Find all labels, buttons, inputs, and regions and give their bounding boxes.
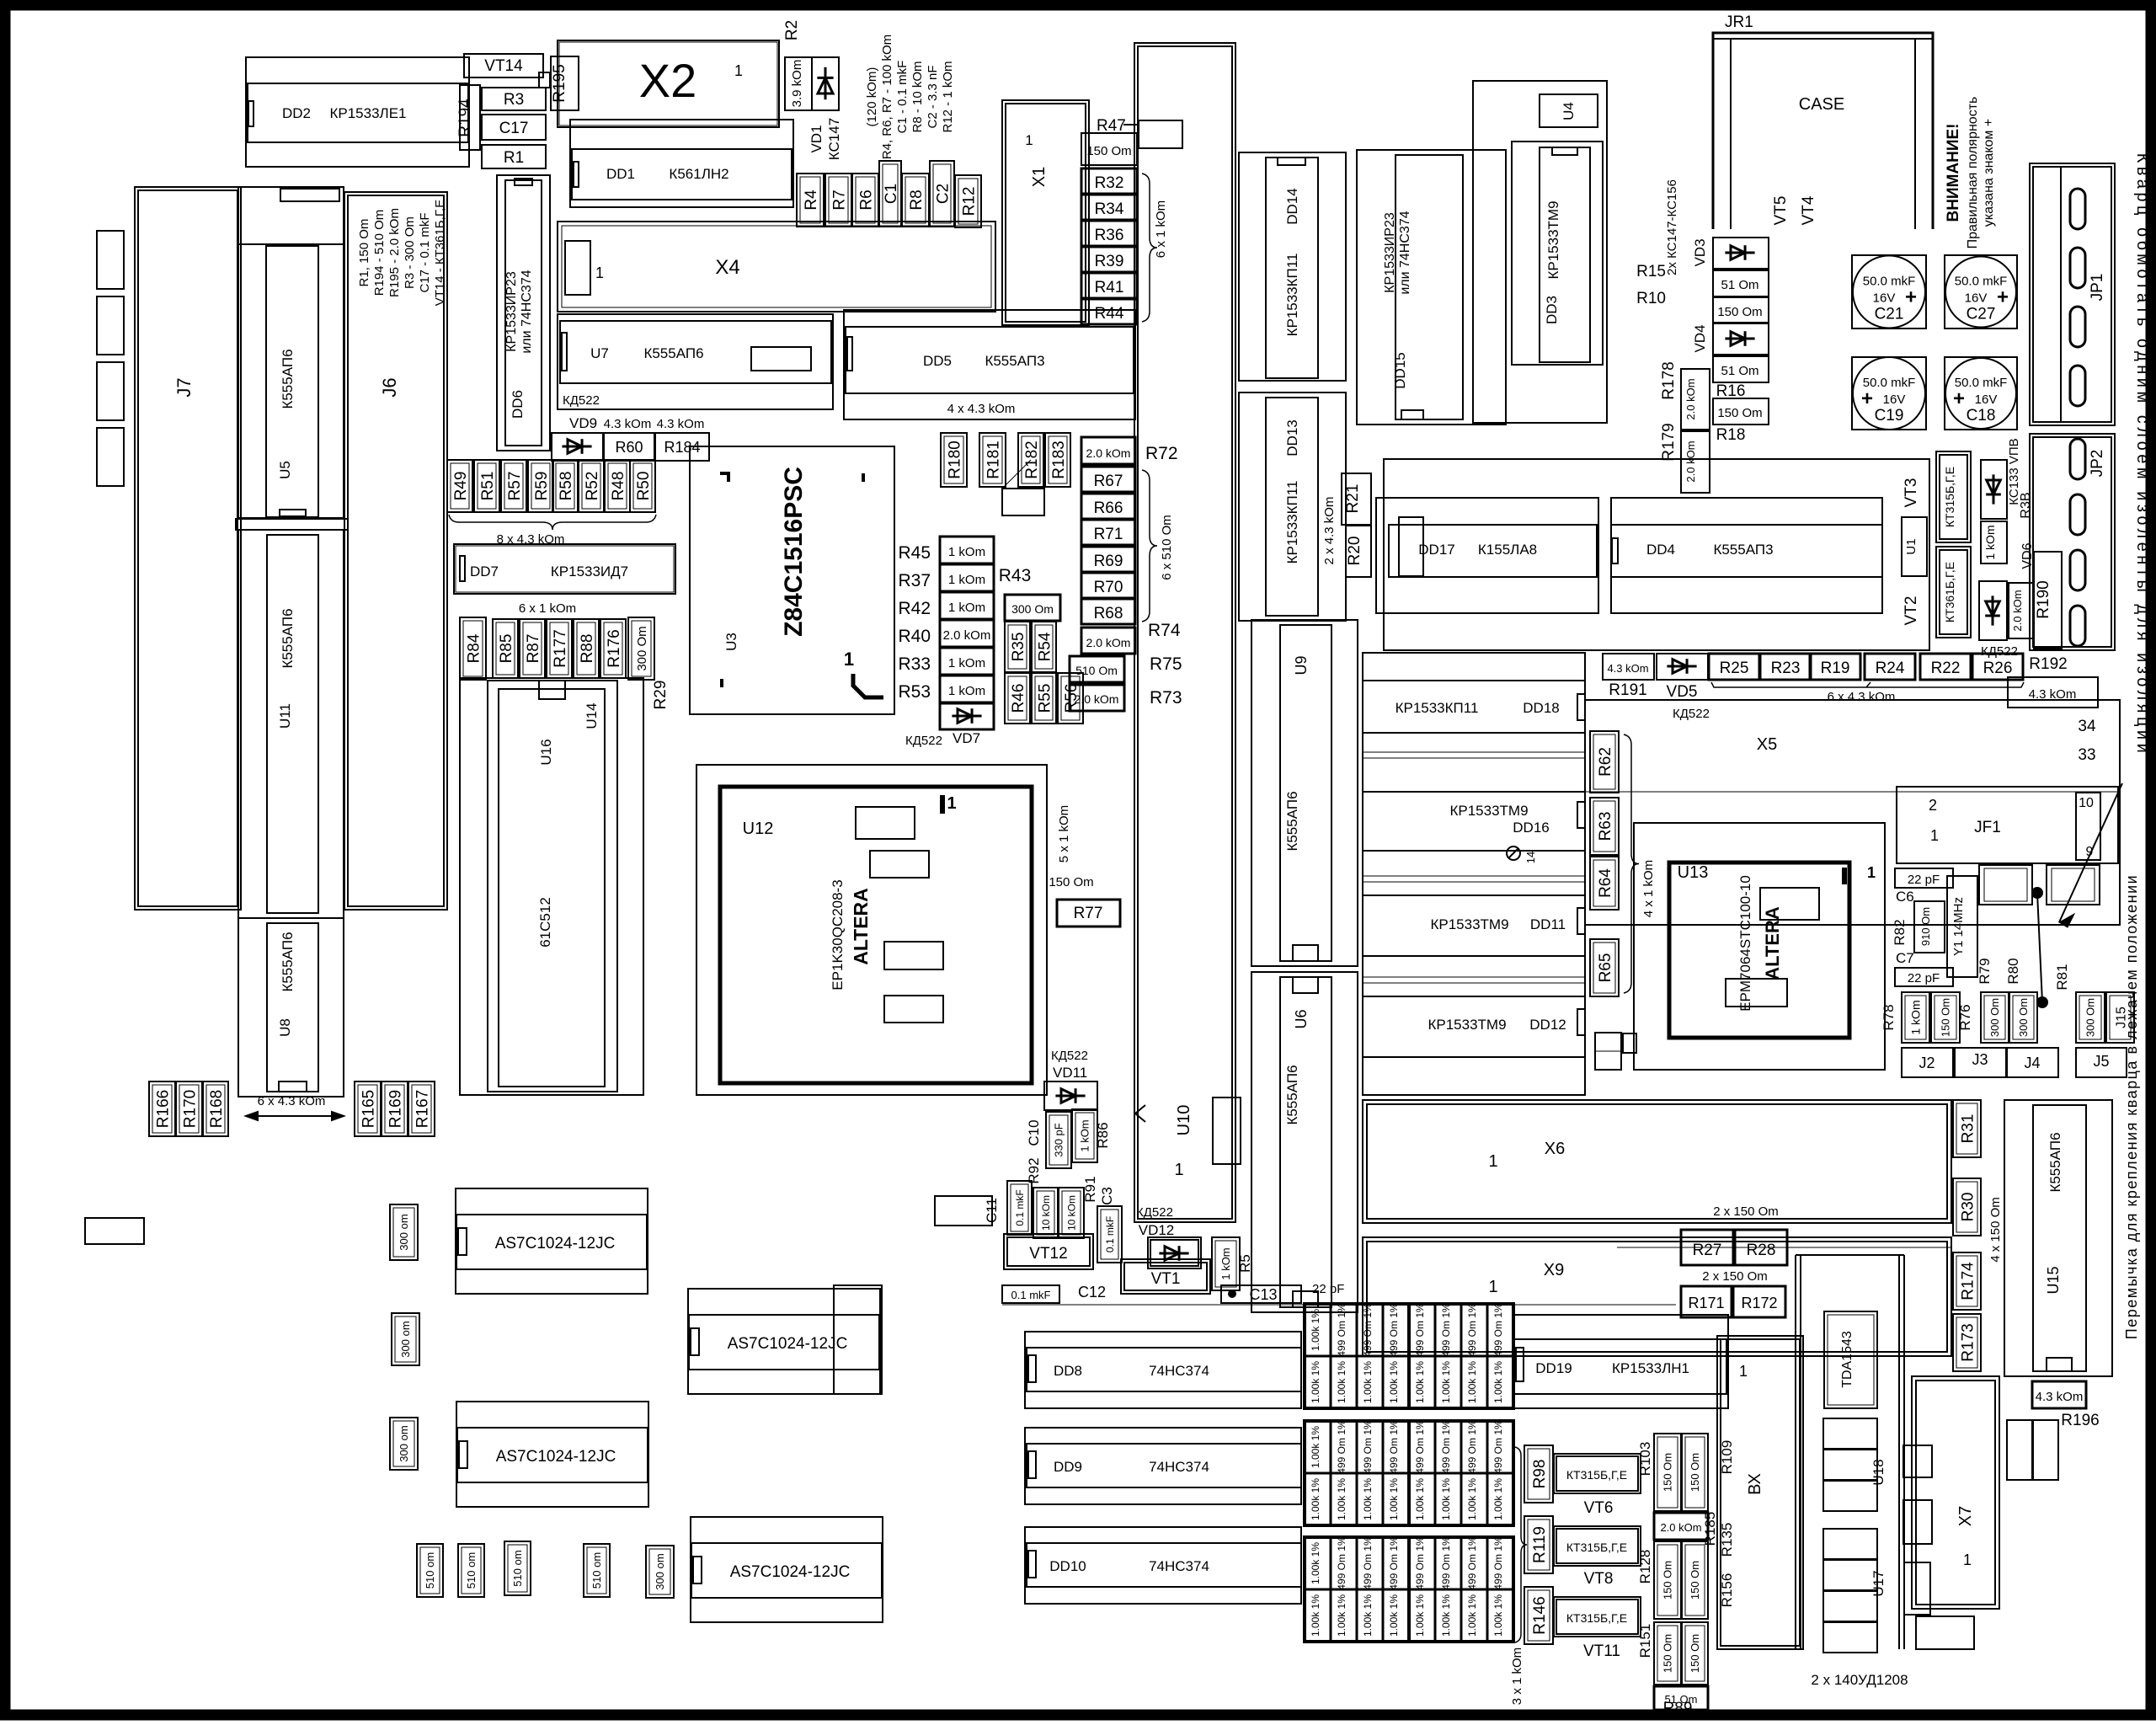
svg-text:X5: X5 bbox=[1757, 735, 1777, 754]
svg-text:U16: U16 bbox=[538, 739, 554, 765]
svg-text:R53: R53 bbox=[898, 682, 931, 702]
svg-text:DD14: DD14 bbox=[1284, 188, 1300, 224]
svg-text:C3: C3 bbox=[1099, 1187, 1115, 1205]
svg-text:R15: R15 bbox=[1636, 263, 1666, 280]
svg-text:1.00k 1%: 1.00k 1% bbox=[1466, 1478, 1478, 1520]
svg-text:R182: R182 bbox=[1023, 441, 1041, 478]
svg-text:U8: U8 bbox=[277, 1018, 293, 1037]
svg-text:499 Om 1%: 499 Om 1% bbox=[1388, 1536, 1400, 1590]
svg-text:VT5: VT5 bbox=[1772, 196, 1790, 226]
svg-text:0.1 mkF: 0.1 mkF bbox=[1011, 1289, 1051, 1301]
svg-text:КР1533ИР23: КР1533ИР23 bbox=[1383, 212, 1397, 293]
svg-text:R45: R45 bbox=[898, 543, 931, 563]
svg-text:R3 - 300 Om: R3 - 300 Om bbox=[403, 216, 417, 289]
svg-text:499 Om 1%: 499 Om 1% bbox=[1440, 1536, 1452, 1590]
svg-text:JP1: JP1 bbox=[2089, 274, 2106, 302]
svg-text:TDA1543: TDA1543 bbox=[1840, 1331, 1854, 1388]
svg-text:R69: R69 bbox=[1094, 553, 1123, 570]
svg-text:R3B: R3B bbox=[2019, 492, 2033, 518]
svg-text:2.0 kOm: 2.0 kOm bbox=[2011, 590, 2024, 631]
svg-text:К555АП3: К555АП3 bbox=[1713, 542, 1773, 558]
svg-text:U9: U9 bbox=[1293, 655, 1310, 675]
svg-text:R60: R60 bbox=[615, 439, 643, 456]
svg-text:150 Om: 150 Om bbox=[1717, 305, 1762, 319]
svg-text:R24: R24 bbox=[1876, 660, 1905, 677]
svg-text:C13: C13 bbox=[1249, 1286, 1277, 1303]
svg-text:DD4: DD4 bbox=[1646, 542, 1675, 558]
svg-text:J3: J3 bbox=[1972, 1051, 1988, 1068]
svg-text:Правильная полярность: Правильная полярность bbox=[1966, 97, 1980, 249]
svg-text:R194 - 510 Om: R194 - 510 Om bbox=[372, 210, 387, 296]
svg-text:499 Om 1%: 499 Om 1% bbox=[1336, 1420, 1347, 1474]
svg-text:КТ315Б,Г,Е: КТ315Б,Г,Е bbox=[1566, 1541, 1627, 1554]
svg-text:R173: R173 bbox=[1959, 1323, 1977, 1361]
svg-text:0.1 mkF: 0.1 mkF bbox=[1104, 1216, 1116, 1252]
svg-text:1.00k 1%: 1.00k 1% bbox=[1388, 1594, 1400, 1637]
svg-text:2.0 kOm: 2.0 kOm bbox=[1086, 636, 1131, 649]
svg-text:1 kOm: 1 kOm bbox=[1079, 1119, 1091, 1151]
svg-text:VT12: VT12 bbox=[1029, 1245, 1067, 1263]
svg-text:ALTERA: ALTERA bbox=[850, 888, 872, 965]
svg-text:К155ЛА8: К155ЛА8 bbox=[1478, 542, 1537, 558]
svg-text:150 Om: 150 Om bbox=[1689, 1453, 1701, 1492]
svg-text:C19: C19 bbox=[1875, 407, 1904, 425]
svg-text:1.00k 1%: 1.00k 1% bbox=[1492, 1361, 1504, 1403]
svg-text:X6: X6 bbox=[1545, 1140, 1565, 1158]
svg-text:R82: R82 bbox=[1892, 919, 1908, 945]
svg-text:R1, 150 Om: R1, 150 Om bbox=[357, 219, 371, 287]
svg-text:Y1 14MHz: Y1 14MHz bbox=[1951, 897, 1966, 956]
svg-text:1: 1 bbox=[1174, 1161, 1183, 1179]
svg-text:X7: X7 bbox=[1956, 1506, 1975, 1526]
svg-text:VT14 - КТ361Б,Г,Е: VT14 - КТ361Б,Г,Е bbox=[433, 200, 447, 307]
svg-text:1 kOm: 1 kOm bbox=[948, 684, 985, 698]
svg-text:R44: R44 bbox=[1095, 305, 1124, 323]
svg-text:Кварц обмотать одним слоем изо: Кварц обмотать одним слоем изоленты для … bbox=[2133, 153, 2152, 757]
svg-text:R36: R36 bbox=[1095, 227, 1124, 244]
svg-text:300 om: 300 om bbox=[398, 1214, 410, 1250]
svg-text:КТ315Б,Г,Е: КТ315Б,Г,Е bbox=[1566, 1468, 1627, 1482]
svg-text:R58: R58 bbox=[558, 472, 575, 501]
svg-text:3 x 1 kOm: 3 x 1 kOm bbox=[1510, 1648, 1524, 1705]
svg-text:R57: R57 bbox=[506, 472, 524, 501]
svg-text:499 Om 1%: 499 Om 1% bbox=[1466, 1303, 1478, 1357]
svg-text:AS7C1024-12JC: AS7C1024-12JC bbox=[730, 1563, 851, 1581]
svg-text:ALTERA: ALTERA bbox=[1762, 906, 1783, 980]
svg-text:4.3 kOm: 4.3 kOm bbox=[657, 417, 705, 431]
svg-text:+: + bbox=[1997, 286, 2009, 309]
svg-text:R64: R64 bbox=[1597, 868, 1614, 898]
svg-text:1 kOm: 1 kOm bbox=[948, 573, 985, 587]
svg-text:R171: R171 bbox=[1688, 1295, 1724, 1311]
svg-text:R34: R34 bbox=[1095, 200, 1124, 218]
svg-text:U11: U11 bbox=[277, 703, 293, 729]
svg-text:C18: C18 bbox=[1967, 407, 1996, 425]
svg-text:R23: R23 bbox=[1771, 660, 1801, 677]
svg-text:2.0 kOm: 2.0 kOm bbox=[1660, 1521, 1701, 1534]
svg-text:2x КС147-КС156: 2x КС147-КС156 bbox=[1665, 179, 1679, 275]
svg-text:R92: R92 bbox=[1026, 1157, 1042, 1183]
svg-text:6 x 510 Om: 6 x 510 Om bbox=[1160, 515, 1174, 580]
svg-text:910 Om: 910 Om bbox=[1919, 907, 1932, 946]
svg-text:R10: R10 bbox=[1636, 290, 1666, 307]
svg-text:1: 1 bbox=[1963, 1551, 1972, 1568]
svg-text:R128: R128 bbox=[1637, 1550, 1653, 1584]
svg-text:VD4: VD4 bbox=[1692, 324, 1708, 352]
svg-text:4 x 1 kOm: 4 x 1 kOm bbox=[1641, 860, 1656, 917]
svg-text:1.00k 1%: 1.00k 1% bbox=[1310, 1542, 1321, 1584]
svg-text:510 om: 510 om bbox=[465, 1552, 478, 1589]
svg-text:ВХ: ВХ bbox=[1746, 1473, 1764, 1495]
svg-text:499 Om 1%: 499 Om 1% bbox=[1492, 1420, 1504, 1474]
svg-text:U6: U6 bbox=[1293, 1009, 1310, 1028]
svg-text:AS7C1024-12JC: AS7C1024-12JC bbox=[495, 1235, 616, 1252]
svg-text:2.0 kOm: 2.0 kOm bbox=[943, 628, 991, 643]
svg-text:499 Om 1%: 499 Om 1% bbox=[1336, 1303, 1347, 1357]
svg-text:КТ315Б,Г,Е: КТ315Б,Г,Е bbox=[1566, 1611, 1627, 1625]
svg-text:R168: R168 bbox=[208, 1090, 226, 1128]
svg-text:1: 1 bbox=[844, 649, 854, 670]
svg-text:R88: R88 bbox=[579, 634, 596, 664]
svg-text:2 x 140УД1208: 2 x 140УД1208 bbox=[1811, 1672, 1908, 1688]
svg-text:R196: R196 bbox=[2061, 1412, 2099, 1429]
svg-text:R87: R87 bbox=[525, 634, 542, 664]
svg-text:U5: U5 bbox=[277, 461, 293, 479]
svg-text:14: 14 bbox=[1524, 852, 1537, 863]
svg-text:74HC374: 74HC374 bbox=[1149, 1558, 1209, 1574]
svg-text:R25: R25 bbox=[1720, 660, 1749, 677]
svg-text:R5: R5 bbox=[1237, 1254, 1253, 1273]
svg-text:J15: J15 bbox=[2114, 1007, 2128, 1028]
svg-text:1: 1 bbox=[1488, 1278, 1497, 1296]
svg-text:К555АП6: К555АП6 bbox=[280, 932, 296, 991]
svg-text:КД522: КД522 bbox=[1136, 1205, 1173, 1220]
svg-text:J5: J5 bbox=[2093, 1053, 2109, 1070]
svg-text:1 kOm: 1 kOm bbox=[948, 601, 985, 615]
svg-text:R70: R70 bbox=[1094, 579, 1123, 596]
svg-text:C2: C2 bbox=[934, 184, 952, 204]
svg-text:16V: 16V bbox=[1883, 393, 1906, 407]
svg-text:VT14: VT14 bbox=[484, 57, 523, 75]
svg-text:499 Om 1%: 499 Om 1% bbox=[1388, 1420, 1400, 1474]
svg-text:(120 kOm): (120 kOm) bbox=[865, 67, 879, 127]
svg-text:К561ЛН2: К561ЛН2 bbox=[669, 166, 728, 182]
svg-text:DD12: DD12 bbox=[1529, 1017, 1566, 1033]
svg-text:510 om: 510 om bbox=[590, 1552, 603, 1589]
svg-text:3.9 kOm: 3.9 kOm bbox=[790, 60, 804, 108]
svg-text:300 om: 300 om bbox=[654, 1553, 666, 1589]
svg-text:+: + bbox=[1905, 286, 1917, 309]
svg-text:R1: R1 bbox=[504, 149, 524, 167]
svg-text:R73: R73 bbox=[1150, 688, 1182, 708]
svg-text:X1: X1 bbox=[1030, 167, 1049, 187]
svg-text:R66: R66 bbox=[1094, 499, 1123, 517]
svg-text:R54: R54 bbox=[1036, 632, 1054, 661]
svg-text:R12 - 1 kOm: R12 - 1 kOm bbox=[941, 61, 955, 132]
svg-text:R192: R192 bbox=[2029, 655, 2067, 673]
svg-text:6 x 4.3 kOm: 6 x 4.3 kOm bbox=[1828, 690, 1896, 704]
svg-text:16V: 16V bbox=[1965, 291, 1988, 306]
svg-text:R47: R47 bbox=[1097, 117, 1126, 135]
svg-text:DD3: DD3 bbox=[1544, 296, 1560, 324]
svg-text:150 Om: 150 Om bbox=[1086, 144, 1131, 158]
svg-text:330 pF: 330 pF bbox=[1053, 1123, 1065, 1157]
svg-text:DD11: DD11 bbox=[1530, 916, 1566, 932]
svg-text:R68: R68 bbox=[1094, 605, 1123, 622]
svg-text:КР1533ТМ9: КР1533ТМ9 bbox=[1449, 803, 1528, 819]
svg-text:указана знаком +: указана знаком + bbox=[1982, 119, 1996, 227]
svg-text:DD7: DD7 bbox=[470, 563, 499, 579]
svg-text:R46: R46 bbox=[1010, 684, 1027, 713]
svg-text:5 x 1 kOm: 5 x 1 kOm bbox=[1057, 805, 1071, 862]
svg-text:VD7: VD7 bbox=[953, 730, 980, 746]
svg-text:2: 2 bbox=[1929, 797, 1937, 814]
svg-text:499 Om 1%: 499 Om 1% bbox=[1362, 1303, 1374, 1357]
svg-text:R62: R62 bbox=[1597, 747, 1614, 777]
svg-text:R183: R183 bbox=[1050, 441, 1068, 478]
svg-text:R180: R180 bbox=[946, 441, 963, 478]
svg-text:R59: R59 bbox=[533, 472, 551, 501]
svg-text:1.00k 1%: 1.00k 1% bbox=[1388, 1361, 1400, 1403]
svg-text:R40: R40 bbox=[898, 627, 931, 646]
svg-text:16V: 16V bbox=[1975, 393, 1998, 407]
svg-text:ВНИМАНИЕ!: ВНИМАНИЕ! bbox=[1945, 123, 1962, 222]
svg-text:К555АП3: К555АП3 bbox=[985, 353, 1044, 369]
svg-text:DD15: DD15 bbox=[1392, 352, 1408, 388]
svg-text:2 x 150 Om: 2 x 150 Om bbox=[1702, 1269, 1768, 1284]
svg-text:X4: X4 bbox=[715, 256, 739, 279]
svg-text:R20: R20 bbox=[1346, 537, 1364, 566]
svg-text:C1: C1 bbox=[883, 184, 900, 204]
svg-text:К555АП6: К555АП6 bbox=[1284, 791, 1300, 851]
svg-text:R4, R6, R7 - 100 kOm: R4, R6, R7 - 100 kOm bbox=[880, 35, 894, 159]
svg-text:499 Om 1%: 499 Om 1% bbox=[1362, 1420, 1374, 1474]
svg-text:150 Om: 150 Om bbox=[1940, 998, 1952, 1037]
svg-text:VD1: VD1 bbox=[808, 125, 825, 152]
svg-text:R78: R78 bbox=[1881, 1004, 1897, 1030]
svg-text:1.00k 1%: 1.00k 1% bbox=[1336, 1594, 1347, 1637]
svg-text:R37: R37 bbox=[898, 571, 931, 590]
svg-text:JF1: JF1 bbox=[1974, 819, 2001, 836]
svg-text:R21: R21 bbox=[1344, 484, 1362, 514]
svg-text:КР1533КП11: КР1533КП11 bbox=[1396, 700, 1479, 716]
svg-text:R165: R165 bbox=[360, 1090, 377, 1128]
svg-text:1 kOm: 1 kOm bbox=[1909, 1000, 1923, 1034]
svg-text:R42: R42 bbox=[898, 599, 931, 618]
svg-text:R43: R43 bbox=[999, 566, 1032, 585]
svg-text:R8: R8 bbox=[908, 190, 926, 210]
svg-text:DD10: DD10 bbox=[1049, 1558, 1086, 1574]
svg-text:1.00k 1%: 1.00k 1% bbox=[1414, 1594, 1426, 1637]
svg-text:R16: R16 bbox=[1716, 382, 1746, 400]
svg-text:499 Om 1%: 499 Om 1% bbox=[1492, 1303, 1504, 1357]
svg-text:R156: R156 bbox=[1719, 1573, 1735, 1608]
svg-text:499 Om 1%: 499 Om 1% bbox=[1362, 1536, 1374, 1590]
svg-text:1.00k 1%: 1.00k 1% bbox=[1440, 1594, 1452, 1637]
svg-text:1: 1 bbox=[1867, 864, 1876, 881]
svg-text:R28: R28 bbox=[1747, 1242, 1776, 1259]
svg-text:КД522: КД522 bbox=[905, 734, 942, 748]
svg-text:К555АП6: К555АП6 bbox=[643, 345, 703, 361]
svg-text:22 pF: 22 pF bbox=[1908, 971, 1940, 985]
svg-text:34: 34 bbox=[2078, 718, 2096, 735]
svg-text:10: 10 bbox=[2079, 796, 2094, 810]
svg-text:150 Om: 150 Om bbox=[1662, 1634, 1674, 1673]
svg-text:К555АП6: К555АП6 bbox=[1284, 1065, 1300, 1124]
svg-text:КР1533ЛН1: КР1533ЛН1 bbox=[1612, 1360, 1689, 1376]
svg-text:EPM7064STC100-10: EPM7064STC100-10 bbox=[1737, 875, 1753, 1012]
svg-text:510 om: 510 om bbox=[511, 1550, 524, 1586]
svg-text:R170: R170 bbox=[181, 1090, 199, 1128]
svg-text:C12: C12 bbox=[1078, 1284, 1106, 1300]
svg-text:U15: U15 bbox=[2045, 1266, 2062, 1294]
svg-text:U10: U10 bbox=[1175, 1105, 1193, 1136]
svg-text:DD5: DD5 bbox=[923, 353, 952, 369]
svg-text:1.00k 1%: 1.00k 1% bbox=[1466, 1361, 1478, 1403]
svg-text:C11: C11 bbox=[984, 1198, 1000, 1223]
svg-text:R3: R3 bbox=[504, 91, 524, 109]
svg-text:КР1533ИР23: КР1533ИР23 bbox=[504, 271, 519, 352]
svg-text:1: 1 bbox=[595, 264, 604, 281]
svg-text:2.0 kOm: 2.0 kOm bbox=[1684, 441, 1697, 482]
svg-text:R98: R98 bbox=[1531, 1460, 1549, 1489]
svg-text:R39: R39 bbox=[1095, 253, 1124, 270]
svg-text:Z84C1516PSC: Z84C1516PSC bbox=[780, 467, 808, 637]
svg-text:2 x 4.3 kOm: 2 x 4.3 kOm bbox=[1322, 497, 1337, 565]
svg-text:R169: R169 bbox=[387, 1090, 404, 1128]
svg-text:R41: R41 bbox=[1095, 279, 1124, 296]
svg-text:150 Om: 150 Om bbox=[1662, 1561, 1674, 1599]
svg-text:Перемычка для крепления кварца: Перемычка для крепления кварца в лежачем… bbox=[2123, 874, 2140, 1339]
svg-text:R167: R167 bbox=[414, 1090, 431, 1128]
svg-text:300 Om: 300 Om bbox=[1988, 998, 2001, 1037]
svg-text:1.00k 1%: 1.00k 1% bbox=[1310, 1478, 1321, 1520]
svg-text:К555АП6: К555АП6 bbox=[280, 349, 296, 409]
svg-text:R109: R109 bbox=[1719, 1440, 1735, 1475]
svg-text:150 Om: 150 Om bbox=[1662, 1453, 1674, 1492]
svg-text:6 x 1 kOm: 6 x 1 kOm bbox=[1154, 200, 1168, 258]
svg-text:C17 - 0.1 mkF: C17 - 0.1 mkF bbox=[418, 212, 432, 292]
svg-text:R151: R151 bbox=[1637, 1624, 1653, 1658]
svg-text:10 kOm: 10 kOm bbox=[1065, 1195, 1077, 1231]
svg-text:74HC374: 74HC374 bbox=[1149, 1363, 1209, 1379]
svg-text:VD11: VD11 bbox=[1053, 1065, 1087, 1081]
svg-text:300 Om: 300 Om bbox=[2017, 998, 2030, 1037]
svg-text:VT11: VT11 bbox=[1583, 1642, 1620, 1660]
svg-text:R29: R29 bbox=[652, 681, 670, 710]
svg-text:R103: R103 bbox=[1637, 1442, 1653, 1477]
svg-text:4.3 kOm: 4.3 kOm bbox=[2036, 1390, 2084, 1404]
svg-text:или 74HC374: или 74HC374 bbox=[1398, 211, 1412, 294]
svg-text:К555АП6: К555АП6 bbox=[280, 608, 296, 668]
svg-text:R50: R50 bbox=[635, 472, 653, 501]
svg-text:1 kOm: 1 kOm bbox=[948, 656, 985, 670]
svg-text:510 om: 510 om bbox=[424, 1552, 436, 1589]
svg-text:DD19: DD19 bbox=[1535, 1360, 1572, 1376]
svg-text:R190: R190 bbox=[2035, 580, 2052, 618]
svg-text:C21: C21 bbox=[1875, 306, 1904, 323]
svg-text:1.00k 1%: 1.00k 1% bbox=[1310, 1309, 1321, 1351]
svg-text:R33: R33 bbox=[898, 654, 931, 674]
svg-text:R27: R27 bbox=[1693, 1242, 1722, 1259]
svg-text:R32: R32 bbox=[1095, 174, 1124, 192]
svg-text:R191: R191 bbox=[1609, 681, 1646, 699]
svg-text:1.00k 1%: 1.00k 1% bbox=[1362, 1594, 1374, 1637]
svg-text:VD9: VD9 bbox=[569, 415, 597, 431]
svg-text:150 Om: 150 Om bbox=[1049, 875, 1093, 889]
svg-text:1 kOm: 1 kOm bbox=[1219, 1247, 1232, 1279]
svg-text:R195 - 2.0 kOm: R195 - 2.0 kOm bbox=[387, 208, 402, 297]
svg-text:AS7C1024-12JC: AS7C1024-12JC bbox=[496, 1448, 616, 1466]
svg-text:AS7C1024-12JC: AS7C1024-12JC bbox=[728, 1335, 848, 1353]
svg-text:U17: U17 bbox=[1870, 1570, 1886, 1596]
svg-text:R67: R67 bbox=[1094, 473, 1123, 490]
svg-text:499 Om 1%: 499 Om 1% bbox=[1440, 1303, 1452, 1357]
svg-text:1: 1 bbox=[1739, 1363, 1748, 1380]
svg-text:J7: J7 bbox=[173, 377, 195, 397]
svg-text:EP1K30QC208-3: EP1K30QC208-3 bbox=[830, 879, 846, 990]
svg-text:DD13: DD13 bbox=[1284, 419, 1300, 456]
svg-text:R84: R84 bbox=[465, 633, 483, 663]
svg-text:1: 1 bbox=[1930, 827, 1939, 844]
svg-text:R119: R119 bbox=[1531, 1526, 1549, 1563]
svg-text:R135: R135 bbox=[1719, 1523, 1735, 1557]
svg-text:1 kOm: 1 kOm bbox=[948, 545, 985, 559]
svg-text:1.00k 1%: 1.00k 1% bbox=[1362, 1361, 1374, 1403]
svg-text:+: + bbox=[1953, 387, 1965, 410]
svg-text:КТ361Б,Г,Е: КТ361Б,Г,Е bbox=[1943, 562, 1956, 622]
svg-text:DD2: DD2 bbox=[282, 105, 311, 121]
svg-text:1.00k 1%: 1.00k 1% bbox=[1414, 1361, 1426, 1403]
svg-text:U14: U14 bbox=[584, 702, 600, 729]
svg-text:R146: R146 bbox=[1531, 1596, 1549, 1634]
svg-text:1: 1 bbox=[734, 62, 743, 79]
svg-text:КД522: КД522 bbox=[1981, 644, 2018, 659]
svg-text:R75: R75 bbox=[1150, 654, 1182, 674]
svg-text:DD1: DD1 bbox=[606, 166, 635, 182]
svg-text:U7: U7 bbox=[590, 345, 609, 361]
svg-text:R79: R79 bbox=[1977, 958, 1993, 984]
svg-text:1.00k 1%: 1.00k 1% bbox=[1362, 1478, 1374, 1520]
svg-text:R166: R166 bbox=[154, 1090, 172, 1128]
svg-text:VD5: VD5 bbox=[1667, 683, 1698, 701]
svg-text:1.00k 1%: 1.00k 1% bbox=[1310, 1594, 1321, 1637]
svg-text:300 om: 300 om bbox=[399, 1321, 412, 1357]
svg-text:150 Om: 150 Om bbox=[1689, 1634, 1701, 1673]
svg-text:U1: U1 bbox=[1904, 538, 1919, 554]
svg-text:J2: J2 bbox=[1919, 1055, 1935, 1071]
svg-text:10 kOm: 10 kOm bbox=[1040, 1195, 1052, 1231]
svg-text:КД522: КД522 bbox=[563, 393, 600, 408]
svg-text:R49: R49 bbox=[452, 472, 470, 501]
svg-text:16V: 16V bbox=[1873, 291, 1896, 306]
svg-text:499 Om 1%: 499 Om 1% bbox=[1414, 1536, 1426, 1590]
svg-text:R31: R31 bbox=[1959, 1114, 1977, 1144]
svg-text:1.00k 1%: 1.00k 1% bbox=[1440, 1361, 1452, 1403]
svg-text:R172: R172 bbox=[1741, 1295, 1777, 1311]
svg-text:1.00k 1%: 1.00k 1% bbox=[1336, 1361, 1347, 1403]
svg-text:R30: R30 bbox=[1959, 1193, 1977, 1222]
svg-text:КР1533ТМ9: КР1533ТМ9 bbox=[1430, 916, 1508, 932]
svg-text:VT8: VT8 bbox=[1584, 1570, 1614, 1588]
svg-text:1.00k 1%: 1.00k 1% bbox=[1492, 1478, 1504, 1520]
svg-text:499 Om 1%: 499 Om 1% bbox=[1336, 1536, 1347, 1590]
svg-text:U3: U3 bbox=[723, 633, 739, 651]
svg-text:22 pF: 22 pF bbox=[1312, 1282, 1344, 1296]
svg-text:C2 - 3.3 nF: C2 - 3.3 nF bbox=[926, 65, 940, 128]
svg-text:VT6: VT6 bbox=[1584, 1499, 1614, 1517]
svg-text:R7: R7 bbox=[830, 190, 848, 210]
